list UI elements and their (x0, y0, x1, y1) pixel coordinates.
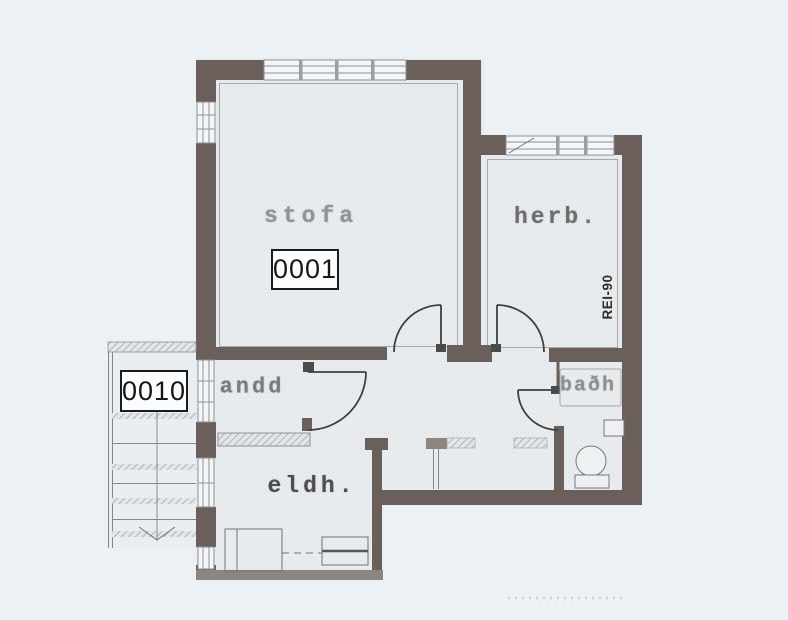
unit-number-0010: 0010 (122, 376, 186, 407)
window-entry-west (198, 360, 214, 422)
window-herb-north (506, 136, 614, 155)
room-label-eldh: eldh. (267, 473, 356, 499)
unit-badge-0001: 0001 (271, 249, 339, 290)
washbasin (604, 420, 624, 436)
scan-smudge (508, 598, 622, 606)
window-eldh-west-1 (198, 458, 214, 507)
opening-lintel-left (447, 438, 475, 448)
bath-north-wall (549, 348, 622, 362)
window-eldh-west-2 (198, 547, 214, 569)
floor-plan-drawing (0, 0, 788, 620)
kitchen-east-wall (372, 450, 382, 578)
opening-lintel-right (514, 438, 547, 448)
stofa-herb-divider-wall (463, 80, 481, 347)
room-label-herb: herb. (514, 204, 598, 230)
bath-west-wall (554, 426, 564, 490)
radiator (218, 433, 310, 446)
room-label-stofa: stofa (264, 203, 358, 229)
hall-wall (215, 347, 387, 360)
room-label-bath: baðh (560, 375, 616, 398)
scanned-floor-plan: stofa herb. andd baðh eldh. 0001 0010 RE… (0, 0, 788, 620)
window-stofa-west (197, 102, 215, 143)
fire-rating-label: REI-90 (600, 251, 616, 343)
window-stofa-north (264, 60, 406, 80)
room-label-andd: andd (220, 375, 285, 400)
unit-badge-0010: 0010 (120, 370, 188, 412)
unit-number-0001: 0001 (273, 254, 337, 285)
